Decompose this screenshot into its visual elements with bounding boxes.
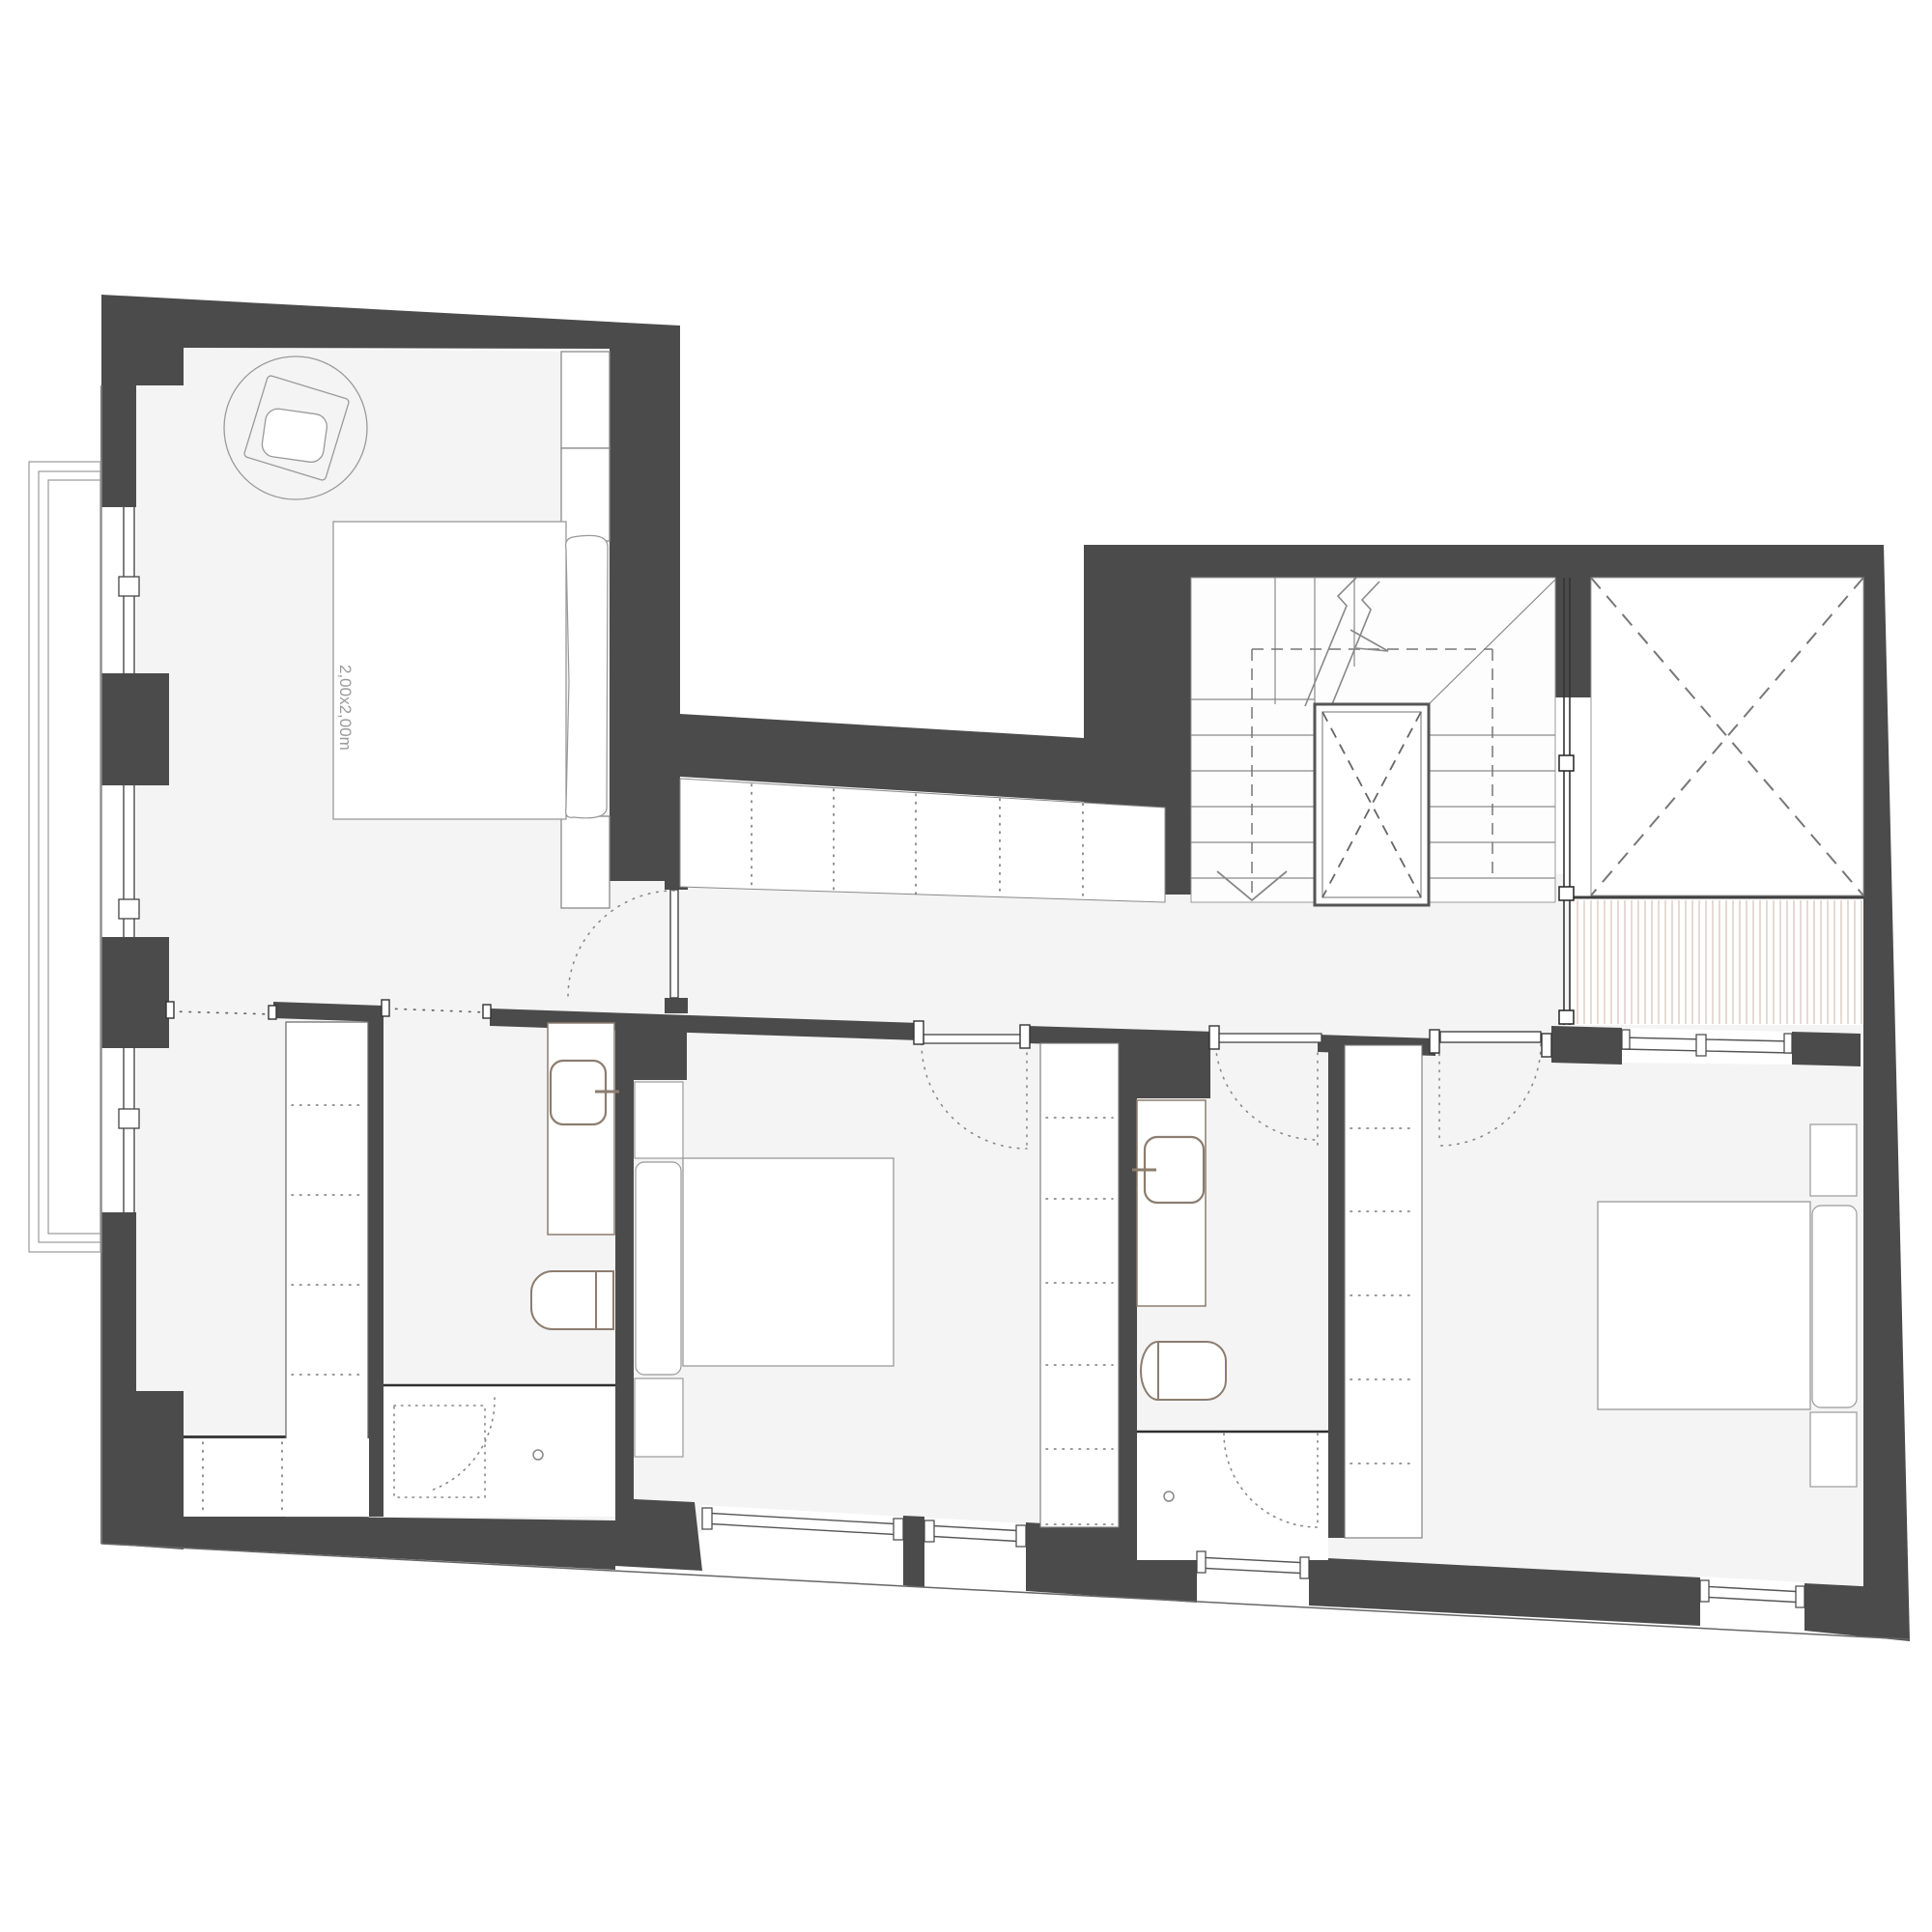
svg-text:2,00x2,00m: 2,00x2,00m [336,665,355,751]
